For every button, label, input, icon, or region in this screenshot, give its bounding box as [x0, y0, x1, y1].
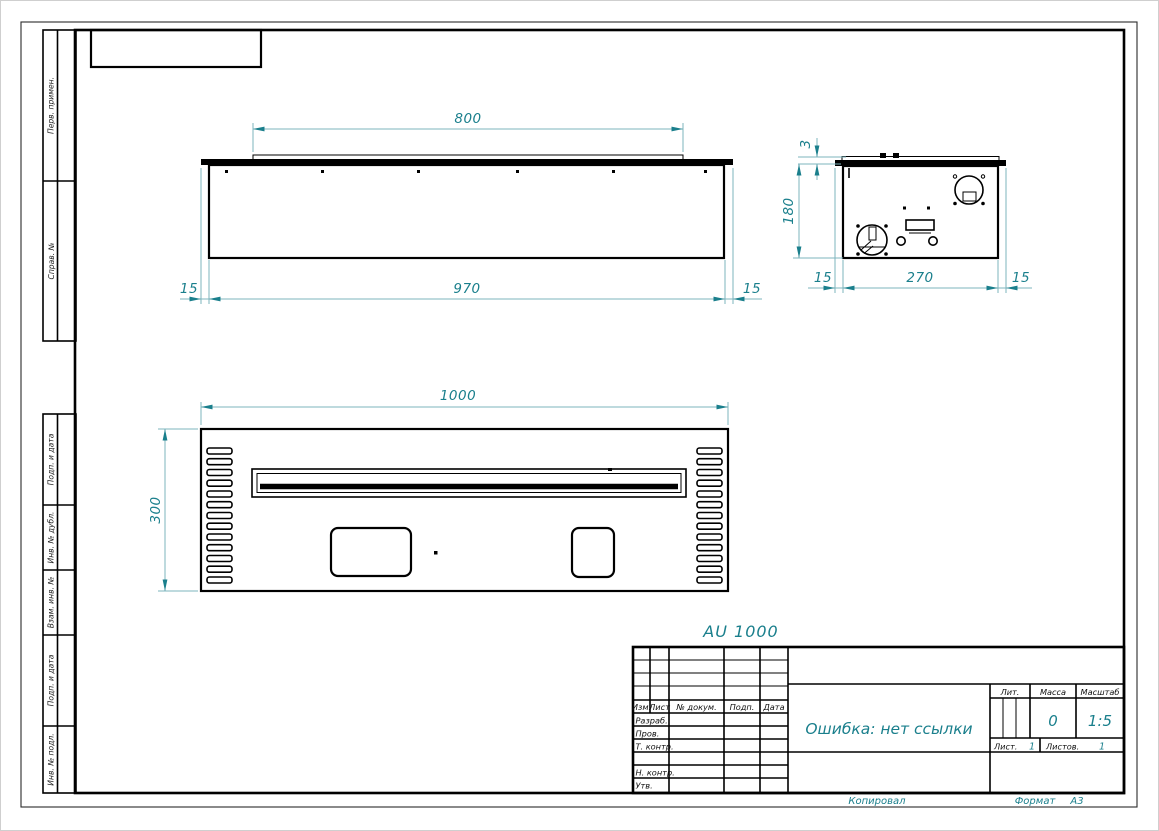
plan-center-dot: [434, 551, 438, 555]
drawing-frame: [21, 22, 1137, 807]
title-block: Изм. Лист № докум. Подп. Дата Разраб. Пр…: [632, 647, 1124, 793]
masshtab-label: Масштаб: [1081, 687, 1120, 697]
col-podp: Подп.: [730, 702, 755, 712]
margin-label-inv-dubl: Инв. № дубл.: [47, 512, 56, 564]
dim-side-right-margin: 15: [1012, 270, 1030, 286]
dimension-side-3: 3: [798, 138, 846, 180]
front-view: [201, 155, 733, 258]
list-label: Лист.: [993, 742, 1017, 752]
col-list: Лист: [648, 702, 670, 712]
plan-view: [201, 429, 728, 591]
listov-label: Листов.: [1045, 742, 1079, 752]
dimension-front-800: 800: [253, 111, 683, 152]
left-margin-column: Перв. примен. Справ. № Подп. и дата Инв.…: [43, 30, 76, 793]
front-top-strip: [253, 155, 683, 160]
margin-label-inv-podl: Инв. № подл.: [47, 733, 56, 785]
dim-front-left-margin: 15: [180, 281, 198, 297]
col-doc: № докум.: [675, 702, 716, 712]
massa-value: 0: [1048, 712, 1058, 730]
footer-labels: Копировал Формат А3: [848, 796, 1083, 807]
drawing-canvas: Перв. примен. Справ. № Подп. и дата Инв.…: [0, 0, 1159, 831]
copied-label: Копировал: [848, 796, 906, 807]
inner-frame: [75, 30, 1124, 793]
row-utv: Утв.: [636, 781, 653, 791]
dim-plan-height: 300: [148, 496, 164, 523]
dim-side-plate-thickness: 3: [798, 139, 814, 148]
margin-label-podp-data-1: Подп. и дата: [47, 433, 56, 485]
dim-plan-width: 1000: [440, 388, 476, 404]
plan-body: [201, 429, 728, 591]
side-tab-2: [893, 153, 899, 158]
dimension-plan-300: 300: [148, 429, 198, 591]
document-name: Ошибка: нет ссылки: [805, 720, 972, 738]
row-razrab: Разраб.: [636, 716, 668, 726]
drawing-designation: AU 1000: [702, 622, 778, 641]
designation-corner-cell: [91, 30, 261, 67]
format-value: А3: [1069, 796, 1083, 807]
margin-label-vzam-inv: Взам. инв. №: [47, 577, 56, 629]
side-top-strip: [842, 157, 999, 161]
margin-label-sprav-no: Справ. №: [47, 242, 56, 279]
drawing-sheet: Перв. примен. Справ. № Подп. и дата Инв.…: [0, 0, 1159, 831]
side-view: [835, 153, 1006, 258]
col-data: Дата: [762, 702, 784, 712]
dimension-plan-1000: 1000: [201, 388, 728, 425]
side-tab-1: [880, 153, 886, 158]
front-body: [209, 165, 724, 258]
row-prov: Пров.: [636, 729, 660, 739]
margin-label-perv-primen: Перв. примен.: [47, 77, 56, 134]
dimension-side-180: 180: [781, 164, 843, 258]
dim-front-top-width: 800: [454, 111, 481, 127]
margin-label-podp-data-2: Подп. и дата: [47, 654, 56, 706]
dim-side-depth: 270: [906, 270, 933, 286]
dim-front-right-margin: 15: [743, 281, 761, 297]
list-value: 1: [1029, 742, 1035, 753]
format-label: Формат: [1015, 796, 1057, 807]
dim-front-body-width: 970: [453, 281, 480, 297]
row-nkontr: Н. контр.: [636, 768, 675, 778]
masshtab-value: 1:5: [1088, 712, 1112, 730]
dim-side-height: 180: [781, 197, 797, 224]
lit-label: Лит.: [1000, 687, 1020, 697]
row-tkontr: Т. контр.: [636, 742, 674, 752]
dim-side-left-margin: 15: [814, 270, 832, 286]
side-body: [843, 166, 998, 258]
outer-border: [21, 22, 1137, 807]
massa-label: Масса: [1040, 687, 1066, 697]
listov-value: 1: [1099, 742, 1105, 753]
